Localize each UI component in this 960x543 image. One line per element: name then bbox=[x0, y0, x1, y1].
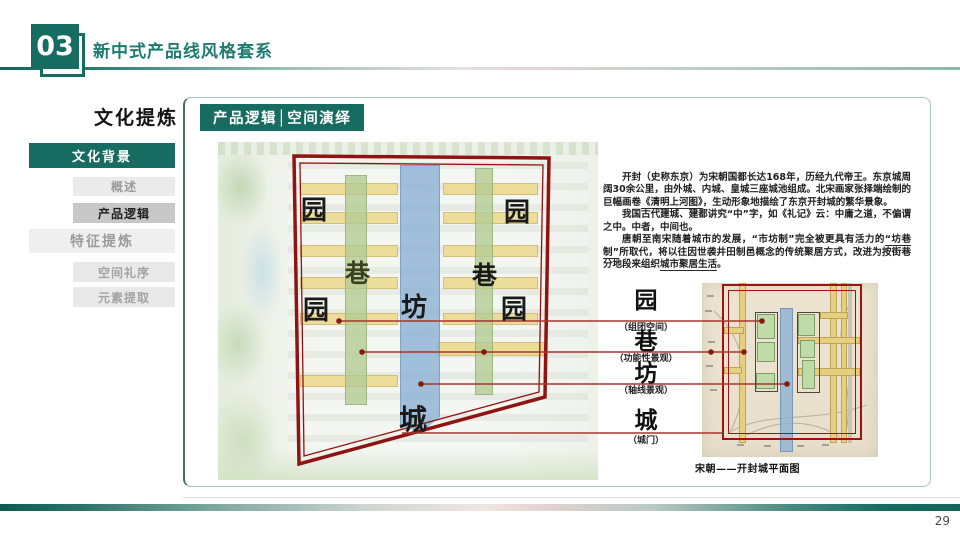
footer-thin-rule bbox=[183, 497, 960, 498]
text-run: ，生动形象地描绘了东京开封城的繁华景象。 bbox=[703, 197, 893, 208]
sidebar-item-overview[interactable]: 概述 bbox=[73, 177, 175, 196]
bold-run: “中” bbox=[727, 209, 749, 220]
slide-title: 新中式产品线风格套系 bbox=[93, 37, 273, 62]
label-char-xiang: 巷 bbox=[600, 331, 692, 354]
sidebar-item-label: 空间礼序 bbox=[98, 264, 150, 281]
diagram-char-yuan-tr: 园 bbox=[504, 200, 530, 226]
label-char-fang: 坊 bbox=[600, 363, 692, 386]
paragraph-fangxiang: 唐朝至南宋随着城市的发展，“市坊制”完全被更具有活力的“坊巷制”所取代，将以往因… bbox=[603, 234, 911, 271]
sidebar-item-label: 产品逻辑 bbox=[98, 205, 150, 222]
underlined-run: 城市聚居生活 bbox=[660, 259, 717, 271]
chapter-number: 03 bbox=[36, 31, 74, 62]
map-gate-mark bbox=[710, 389, 717, 391]
map-gate-mark bbox=[822, 444, 829, 446]
text-run: 所取代，将以往因世袭井田制邑概念的传统聚居方式，改进为按街巷分地段来组织 bbox=[603, 247, 911, 270]
article-text: 开封（史称东京）为宋朝国都长达168年，历经九代帝王。东京城周阔30余公里，由外… bbox=[603, 172, 911, 272]
diagram-char-xiang-left: 巷 bbox=[345, 261, 370, 286]
map-gate-mark bbox=[707, 295, 714, 297]
sidebar-item-culture-background[interactable]: 文化背景 bbox=[29, 143, 175, 168]
map-city-wall-inner bbox=[728, 290, 856, 434]
label-char-yuan: 园 bbox=[600, 290, 692, 313]
sidebar-item-space-order[interactable]: 空间礼序 bbox=[73, 262, 175, 282]
map-gate-mark bbox=[764, 445, 771, 447]
sidebar-item-product-logic[interactable]: 产品逻辑 bbox=[73, 203, 175, 223]
kaifeng-map-image bbox=[702, 283, 878, 457]
masterplan-tree-row bbox=[218, 142, 598, 155]
section-badge: 产品逻辑│空间演绎 bbox=[200, 104, 364, 131]
sidebar-title: 文化提炼 bbox=[30, 103, 178, 130]
header-gradient-rule bbox=[0, 67, 960, 70]
diagram-char-yuan-mr: 园 bbox=[501, 297, 527, 323]
underlined-run: 《清明上河图》 bbox=[641, 197, 703, 209]
diagram-char-yuan-tl: 园 bbox=[301, 198, 327, 224]
map-gate-mark bbox=[797, 445, 804, 447]
map-gate-mark bbox=[706, 365, 713, 367]
bold-run: 开封（史称东京） bbox=[622, 172, 699, 183]
diagram-char-fang: 坊 bbox=[401, 295, 427, 321]
map-gate-mark bbox=[737, 444, 744, 446]
masterplan-greenery bbox=[218, 155, 298, 480]
text-run: 我国古代建城、建都讲究 bbox=[622, 209, 727, 220]
green-axis-left bbox=[345, 175, 367, 405]
label-caption-cheng: （城门） bbox=[600, 436, 692, 447]
text-run: 唐朝至南宋随着城市的发展，“市坊制”完全被更具有活力的 bbox=[622, 234, 885, 245]
map-caption: 宋朝——开封城平面图 bbox=[695, 460, 800, 475]
diagram-char-yuan-ml: 园 bbox=[303, 298, 329, 324]
paragraph-zhong: 我国古代建城、建都讲究“中”字，如《礼记》云：中庸之道，不偏谓之中。中者，中间也… bbox=[603, 209, 911, 234]
masterplan-lawn bbox=[218, 450, 598, 480]
chapter-number-badge: 03 bbox=[31, 24, 79, 69]
page-number: 29 bbox=[935, 514, 950, 528]
diagram-char-xiang-right: 巷 bbox=[472, 263, 497, 288]
map-gate-mark bbox=[708, 341, 715, 343]
sidebar-item-label: 特征提炼 bbox=[70, 231, 134, 251]
label-caption-fang: （轴线景观） bbox=[600, 386, 692, 397]
map-gate-mark bbox=[705, 310, 712, 312]
paragraph-kaifeng: 开封（史称东京）为宋朝国都长达168年，历经九代帝王。东京城周阔30余公里，由外… bbox=[603, 172, 911, 209]
sidebar-item-label: 概述 bbox=[111, 178, 137, 195]
sidebar-item-element-extraction[interactable]: 元素提取 bbox=[73, 287, 175, 307]
diagram-char-cheng: 城 bbox=[399, 406, 427, 434]
sidebar-item-feature-extraction[interactable]: 特征提炼 bbox=[29, 229, 175, 253]
label-char-cheng: 城 bbox=[600, 410, 692, 433]
sidebar-item-label: 文化背景 bbox=[72, 146, 132, 165]
sidebar-item-label: 元素提取 bbox=[98, 289, 150, 306]
slide-canvas: 03 新中式产品线风格套系 文化提炼 文化背景 概述 产品逻辑 特征提炼 空间礼… bbox=[0, 0, 960, 543]
text-run: 。 bbox=[717, 259, 727, 270]
footer-gradient-rule bbox=[0, 504, 960, 511]
